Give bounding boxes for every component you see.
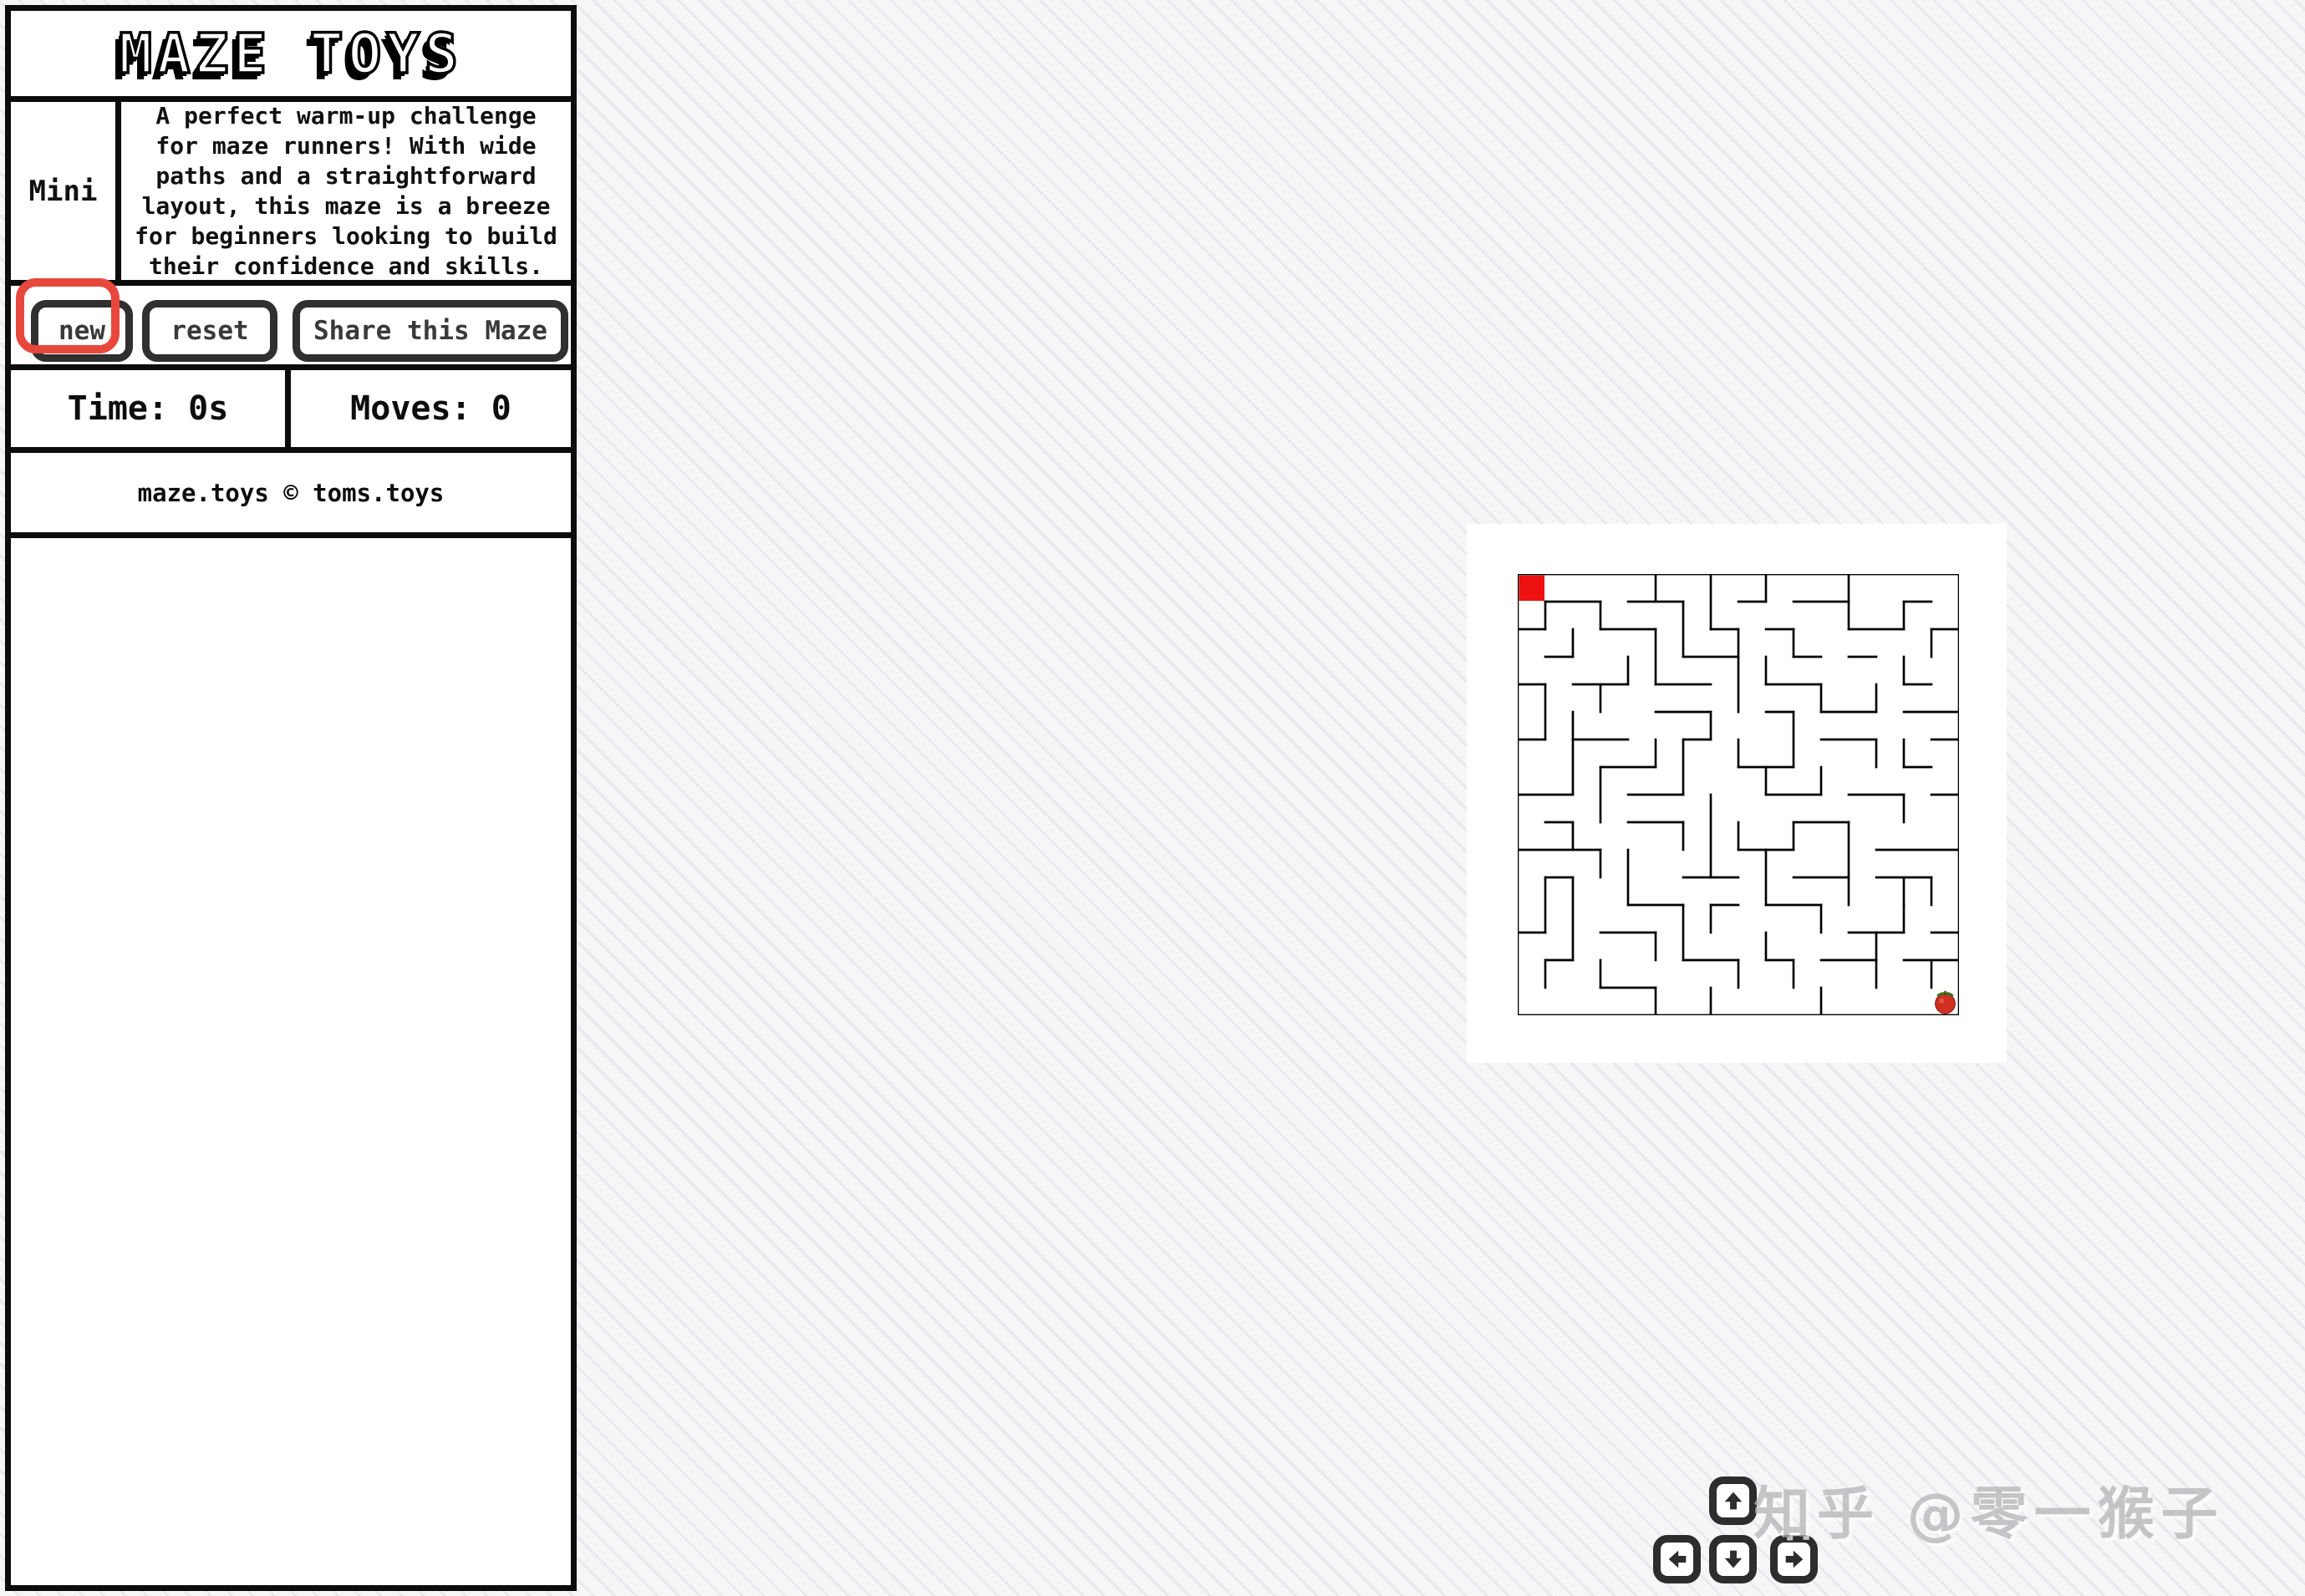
page-title: MAZE TOYS xyxy=(119,22,463,86)
header-row: MAZE TOYS xyxy=(11,11,571,102)
description-cell: A perfect warm-up challenge for maze run… xyxy=(121,102,571,280)
new-maze-button[interactable]: new xyxy=(31,300,133,362)
maze-description: A perfect warm-up challenge for maze run… xyxy=(131,101,561,282)
share-maze-button[interactable]: Share this Maze xyxy=(293,300,568,362)
maze-start-cell xyxy=(1519,576,1544,601)
toolbar-row: new reset Share this Maze xyxy=(11,286,571,370)
arrow-up-key[interactable] xyxy=(1709,1477,1757,1525)
info-row: Mini A perfect warm-up challenge for maz… xyxy=(11,102,571,286)
time-stat: Time: 0s xyxy=(11,370,291,447)
tomato-goal-icon xyxy=(1936,991,1956,1014)
arrow-left-icon xyxy=(1663,1545,1692,1573)
arrow-up-icon xyxy=(1719,1487,1748,1515)
maze-card xyxy=(1467,524,2007,1063)
reset-button[interactable]: reset xyxy=(142,300,277,362)
sidebar-panel: MAZE TOYS Mini A perfect warm-up challen… xyxy=(5,5,577,1591)
watermark-text: 知乎 @零一猴子 xyxy=(1753,1467,2225,1550)
moves-stat: Moves: 0 xyxy=(291,370,571,447)
maze-board[interactable] xyxy=(1518,574,1959,1015)
arrow-down-icon xyxy=(1719,1545,1748,1573)
footer-credit: maze.toys © toms.toys xyxy=(11,453,571,538)
stats-row: Time: 0s Moves: 0 xyxy=(11,370,571,453)
difficulty-label: Mini xyxy=(11,102,121,280)
arrow-left-key[interactable] xyxy=(1653,1535,1701,1583)
arrow-right-key[interactable] xyxy=(1770,1535,1818,1583)
arrow-down-key[interactable] xyxy=(1709,1535,1757,1583)
maze-walls xyxy=(1518,574,1959,1015)
arrow-right-icon xyxy=(1780,1545,1809,1573)
